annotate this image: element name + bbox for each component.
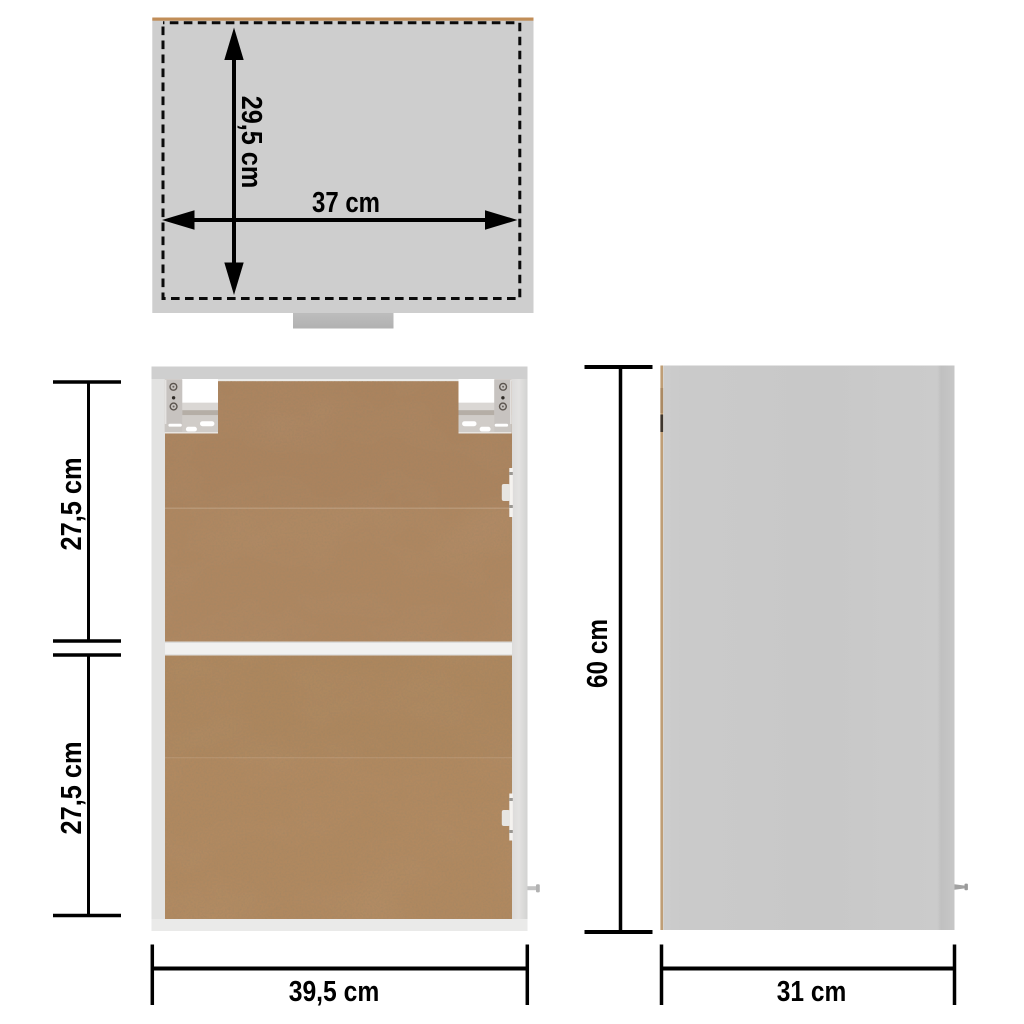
svg-text:27,5 cm: 27,5 cm xyxy=(56,458,88,551)
svg-text:39,5 cm: 39,5 cm xyxy=(289,976,380,1008)
svg-text:31 cm: 31 cm xyxy=(777,976,847,1008)
svg-text:60 cm: 60 cm xyxy=(582,619,614,688)
svg-text:37 cm: 37 cm xyxy=(312,187,380,219)
svg-text:27,5 cm: 27,5 cm xyxy=(56,742,88,835)
svg-text:29,5 cm: 29,5 cm xyxy=(235,96,267,189)
